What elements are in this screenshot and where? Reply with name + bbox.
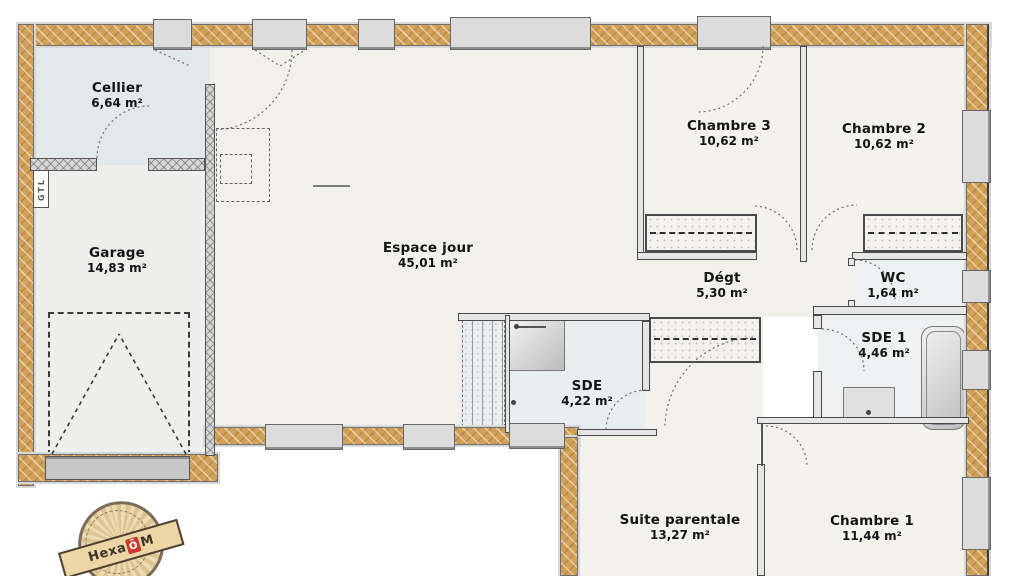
room-name: Garage [52,245,182,261]
wall-sde-top [458,313,650,321]
room-name: Dégt [662,270,782,286]
window-chambre1 [962,477,991,550]
wall-wc-sde1 [813,306,967,315]
room-area: 13,27 m² [600,528,760,542]
window-cellier [153,19,192,50]
gtl-label: GTL [37,178,46,201]
shower-head-icon [514,324,519,329]
window-espace-top-2 [358,19,395,50]
wall-sde1-left-b [813,371,822,419]
window-sde [509,423,565,449]
wall-sde-left [505,315,510,433]
room-area: 1,64 m² [843,286,943,300]
window-espace-top-1 [252,19,307,50]
wall-chambre3-chambre2 [800,46,807,262]
room-area: 10,62 m² [809,137,959,151]
room-area: 4,46 m² [824,346,944,360]
window-espace-bottom-2 [403,424,455,450]
room-name: WC [843,270,943,286]
room-name: Espace jour [353,240,503,256]
gtl-technical-box: GTL [33,170,49,208]
room-label-suite-parentale: Suite parentale 13,27 m² [600,512,760,542]
room-name: Chambre 3 [654,118,804,134]
closet-suite [649,317,761,363]
closet-dash-line [654,338,756,340]
wall-sde1-left-a [813,315,822,329]
wall-espace-chambre3 [637,46,644,258]
room-label-degt: Dégt 5,30 m² [662,270,782,300]
room-label-sde: SDE 4,22 m² [527,378,647,408]
room-label-chambre-1: Chambre 1 11,44 m² [792,513,952,543]
room-area: 10,62 m² [654,134,804,148]
closet-chambre2 [863,214,963,252]
floor-chambre-1 [762,420,967,576]
room-name: Cellier [57,80,177,96]
wall-degt-wc-a [848,258,855,266]
door-leaf-chambre1 [761,424,763,466]
closet-dash-line [868,232,958,234]
wall-chambres-degt [637,252,757,260]
room-area: 6,64 m² [57,96,177,110]
window-espace-bottom-1 [265,424,343,450]
sink-sde1-faucet [866,410,871,415]
garage-door [45,456,190,480]
room-name: Chambre 2 [809,121,959,137]
window-chambre2 [962,110,991,183]
wall-chambre1-top [757,417,969,424]
stamp-brand-suffix: M [139,532,156,550]
window-wc [962,270,991,303]
room-name: SDE 1 [824,330,944,346]
window-espace-bay [450,17,591,50]
technical-duct-zone [462,315,505,427]
room-name: SDE [527,378,647,394]
room-name: Chambre 1 [792,513,952,529]
wall-suite-top [577,429,657,436]
wall-cellier-garage-right [205,84,215,456]
room-label-wc: WC 1,64 m² [843,270,943,300]
kitchen-appliance-outline [220,154,252,184]
room-label-espace-jour: Espace jour 45,01 m² [353,240,503,270]
shower-arm-icon [518,326,546,328]
stamp-brand-prefix: Hexa [87,540,128,565]
closet-dash-line [650,232,752,234]
room-label-cellier: Cellier 6,64 m² [57,80,177,110]
closet-chambre3 [645,214,757,252]
room-label-garage: Garage 14,83 m² [52,245,182,275]
room-name: Suite parentale [600,512,760,528]
builder-stamp: HexaōM [57,491,178,576]
floor-suite-parentale [575,430,760,576]
room-label-chambre-2: Chambre 2 10,62 m² [809,121,959,151]
wall-cellier-bottom-right [148,158,205,171]
garage-parking-outline [48,312,190,456]
exterior-wall-left [18,24,34,486]
sink-sde-faucet [511,400,516,405]
window-sde1 [962,350,991,390]
room-area: 4,22 m² [527,394,647,408]
wall-wc-top [852,252,967,260]
floor-plan: GTL Cellier 6,64 m² Garage [0,0,1024,576]
exterior-wall-wing-left [560,437,578,576]
french-door-chambre3 [697,16,771,50]
room-area: 14,83 m² [52,261,182,275]
room-area: 45,01 m² [353,256,503,270]
room-label-sde-1: SDE 1 4,46 m² [824,330,944,360]
room-label-chambre-3: Chambre 3 10,62 m² [654,118,804,148]
room-area: 5,30 m² [662,286,782,300]
room-area: 11,44 m² [792,529,952,543]
